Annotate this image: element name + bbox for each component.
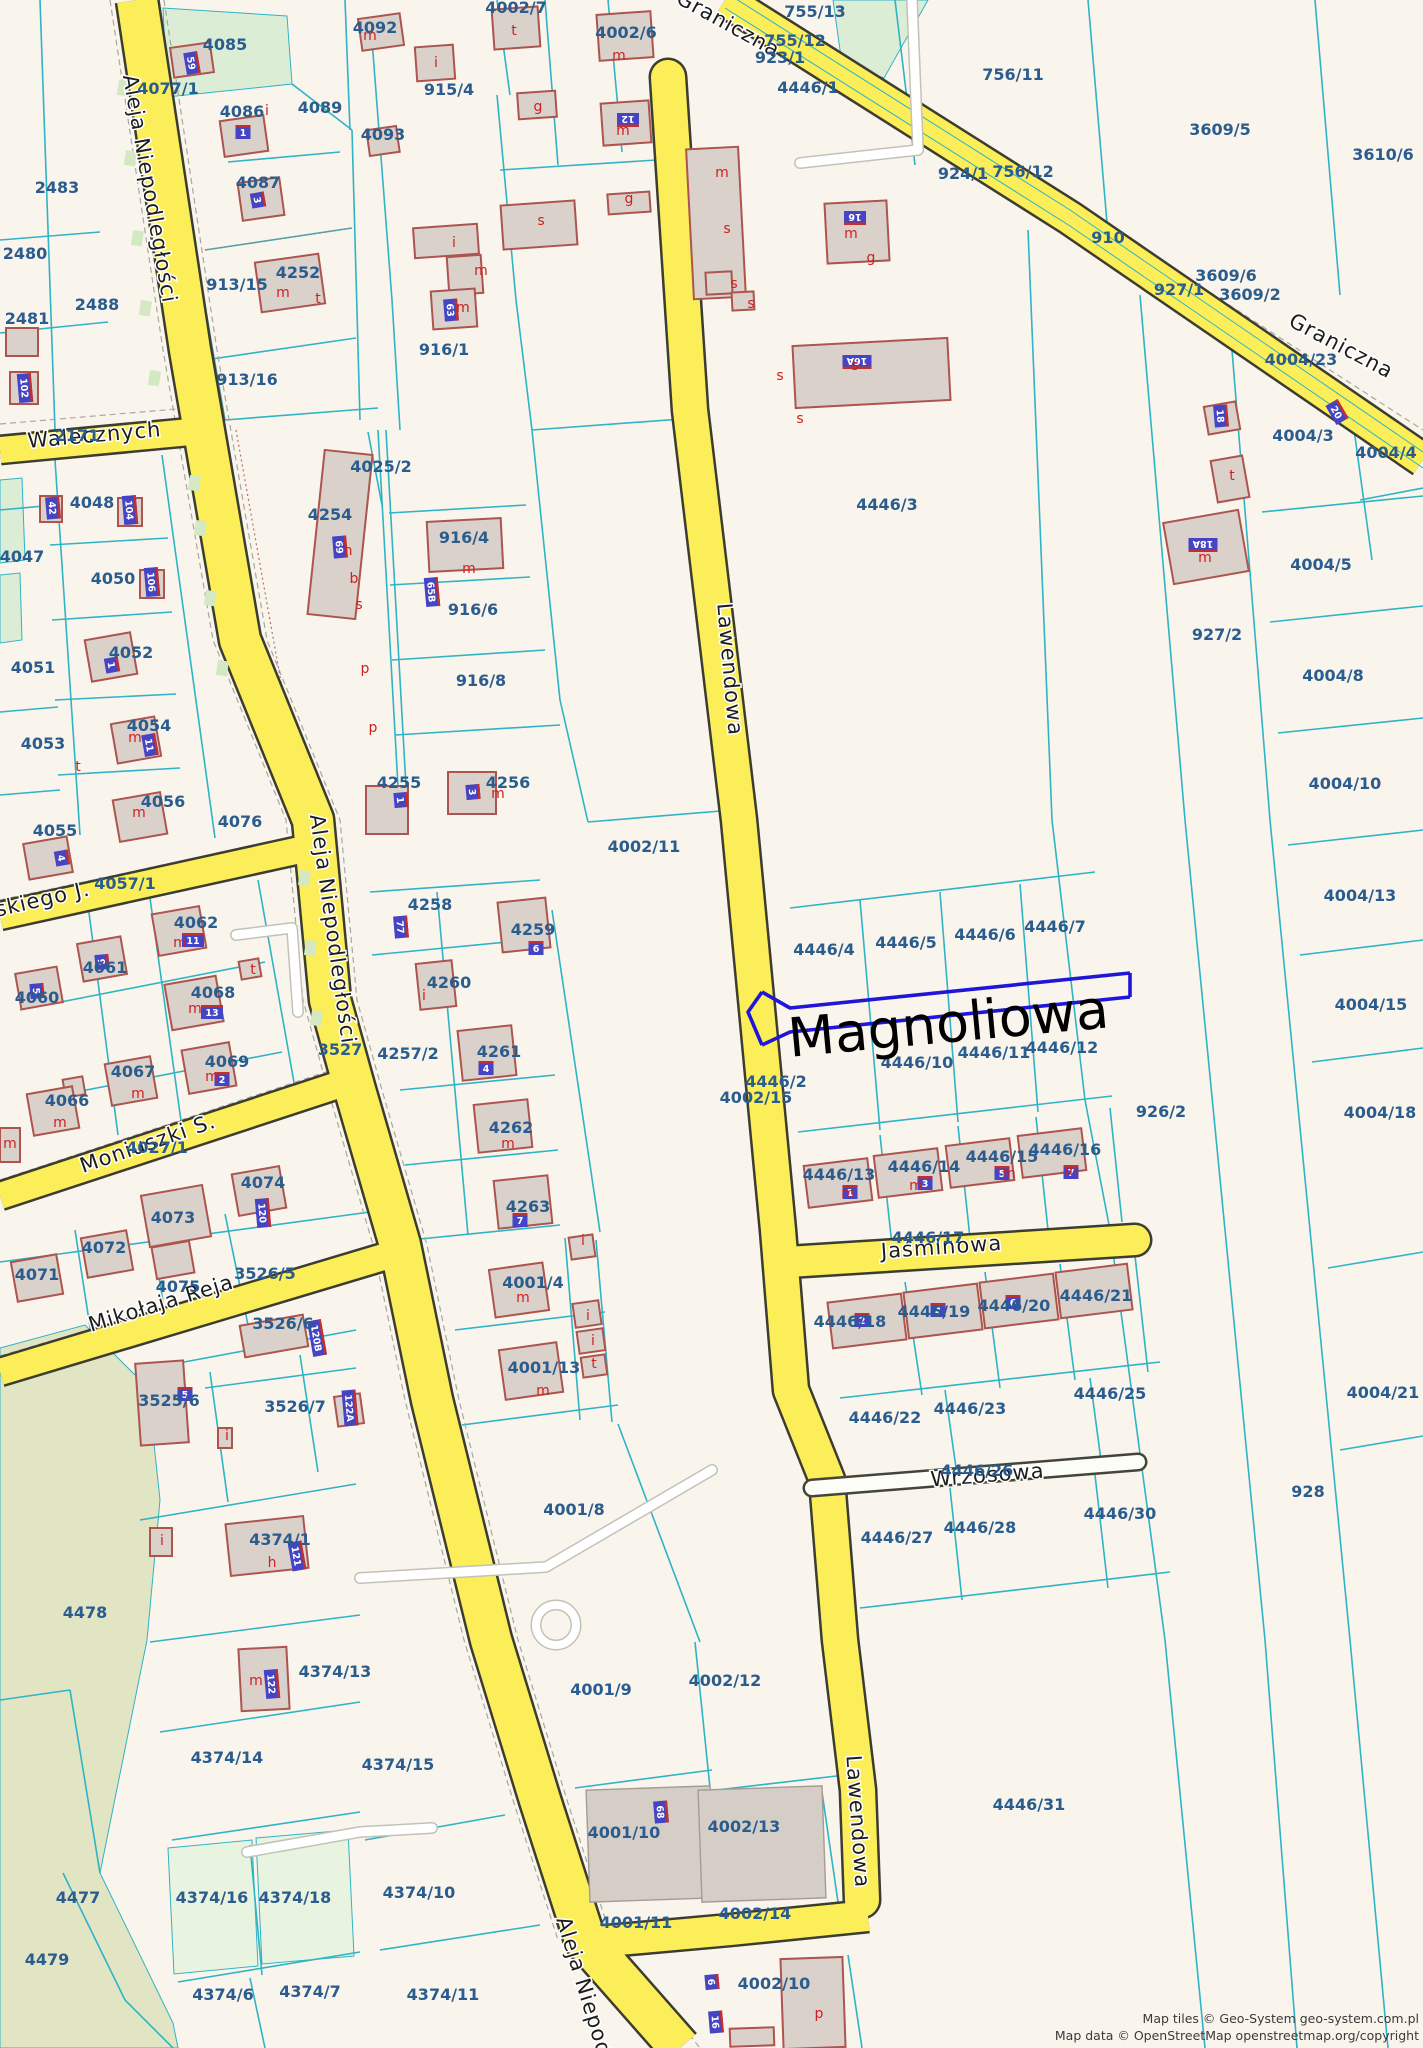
address-plate: 6 [704,1974,719,1990]
address-plate: 77 [393,915,409,938]
address-plate: 4 [479,1061,494,1075]
parcel-number: 4002/15 [720,1088,793,1107]
parcel-number: 4446/20 [978,1296,1051,1315]
parcel-number: 3527 [318,1040,363,1059]
parcel-number: 4446/4 [793,940,855,959]
address-plate: 4 [54,849,70,866]
building-letter: s [730,276,737,292]
building-letter: s [747,296,754,312]
parcel-number: 4075 [156,1277,201,1296]
parcel-number: 4002/7 [485,0,547,17]
parcel-number: 928 [1291,1482,1324,1501]
parcel-number: 2488 [75,295,120,314]
address-plate: 102 [17,373,33,403]
parcel-number: 4001/11 [600,1913,673,1932]
building-letter: m [205,1069,219,1085]
address-plate: 106 [144,567,160,597]
building-letter: m [249,1673,263,1689]
parcel-number: 4087 [236,173,281,192]
parcel-number: 4062 [174,913,219,932]
parcel-number: 916/6 [448,600,498,619]
building-letter: m [844,226,858,242]
address-plate: 3 [250,191,266,208]
svg-text:18: 18 [1213,409,1225,424]
svg-text:77: 77 [393,920,405,934]
parcel-number: 2483 [35,178,80,197]
building-letter: m [1198,550,1212,566]
parcel-number: 4076 [218,812,263,831]
building-letter: s [776,368,783,384]
svg-text:63: 63 [443,303,455,317]
parcel-number: 4252 [276,263,321,282]
parcel-number: 4446/21 [1060,1286,1133,1305]
parcel-number: 4446/31 [993,1795,1066,1814]
building-letter: m [536,1383,550,1399]
building-letter: p [369,720,378,736]
parcel-number: 4055 [33,821,78,840]
parcel-number: 4374/18 [259,1888,332,1907]
building-letter: i [422,988,426,1004]
parcel-number: 916/8 [456,671,506,690]
building-letter: m [3,1136,17,1152]
parcel-number: 4374/16 [176,1888,249,1907]
parcel-number: 4446/5 [875,933,937,952]
svg-text:2: 2 [219,1075,226,1086]
address-plate: 104 [122,495,138,525]
building [152,1241,195,1279]
address-plate: 1 [393,792,408,808]
building-letter: m [276,285,290,301]
building [730,2027,775,2047]
building-letter: m [501,1136,515,1152]
parcel-number: 4477 [56,1888,101,1907]
svg-text:11: 11 [186,936,199,947]
parcel-number: 4446/15 [966,1147,1039,1166]
parcel-number: 4001/10 [588,1823,661,1842]
parcel-number: 3526/7 [264,1397,326,1416]
parcel-number: 4072 [82,1238,127,1257]
parcel-number: 4004/4 [1355,443,1417,462]
parcel-number: 4004/23 [1265,350,1338,369]
parcel-number: 4086 [220,102,265,121]
parcel-number: 756/12 [992,162,1054,181]
parcel-number: 4066 [45,1091,90,1110]
parcel-number: 913/16 [216,370,278,389]
parcel-number: 4374/1 [249,1530,311,1549]
parcel-number: 923/1 [755,48,805,67]
parcel-number: 4262 [489,1118,534,1137]
svg-text:120: 120 [255,1203,268,1224]
parcel-number: 4257/2 [377,1044,439,1063]
parcel-number: 3526/5 [234,1264,296,1283]
parcel-number: 4057/1 [94,874,156,893]
parcel-number: 2481 [5,309,50,328]
parcel-number: 4004/3 [1272,426,1334,445]
parcel-number: 755/13 [784,2,846,21]
parcel-number: 4374/6 [192,1985,254,2004]
building-letter: i [452,235,456,251]
parcel-number: 4256 [486,773,531,792]
building-letter: i [591,1333,595,1349]
parcel-number: 4374/10 [383,1883,456,1902]
building-letter: i [581,1233,585,1249]
address-plate: 18 [1213,404,1229,427]
address-plate: 68 [653,1800,669,1823]
parcel-number: 927/2 [1192,625,1242,644]
parcel-number: 4446/7 [1024,917,1086,936]
parcel-number: 4261 [477,1042,522,1061]
building-letter: m [462,561,476,577]
parcel-number: 4259 [511,920,556,939]
building [780,1957,845,2048]
parcel-number: 924/1 [938,164,988,183]
parcel-number: 4446/14 [888,1157,961,1176]
parcel-number: 4446/6 [954,925,1016,944]
address-plate: 42 [45,496,61,519]
svg-text:122: 122 [264,1674,277,1695]
parcel-number: 4446/22 [849,1408,922,1427]
svg-text:42: 42 [45,501,57,515]
building-letter: p [815,2006,824,2022]
building-letter: s [537,213,544,229]
building-letter: i [586,1308,590,1324]
parcel-number: 2171 [55,426,100,445]
parcel-number: 4001/13 [508,1358,581,1377]
parcel-number: 4446/19 [898,1302,971,1321]
parcel-number: 3609/2 [1219,285,1281,304]
parcel-number: 4446/30 [1084,1504,1157,1523]
parcel-number: 4374/15 [362,1755,435,1774]
attribution: Map tiles © Geo-System geo-system.com.pl… [1055,2011,1419,2045]
parcel-number: 916/1 [419,340,469,359]
parcel-number: 4446/3 [856,495,918,514]
building-letter: m [53,1115,67,1131]
parcel-number: 4004/5 [1290,555,1352,574]
cadastral-map: 591310212631616A42104106465B3169771818A2… [0,0,1423,2048]
parcel-number: 4374/7 [279,1982,341,2001]
parcel-number: 4004/18 [1344,1103,1417,1122]
building-letter: t [1229,468,1235,484]
parcel-number: 4255 [377,773,422,792]
svg-text:68: 68 [653,1805,665,1820]
parcel-number: 4068 [191,983,236,1002]
parcel-number: 3609/6 [1195,266,1257,285]
building-letter: i [225,1428,229,1444]
building-letter: m [841,1186,855,1202]
svg-text:16: 16 [848,211,862,222]
parcel-number: 4258 [408,895,453,914]
building-letter: s [796,411,803,427]
address-plate: 16 [708,2010,724,2033]
building-letter: p [361,661,370,677]
parcel-number: 4446/25 [1074,1384,1147,1403]
parcel-number: 4446/27 [861,1528,934,1547]
svg-text:65B: 65B [424,581,437,602]
svg-text:6: 6 [533,944,540,955]
parcel-number: 916/4 [439,528,489,547]
building-letter: m [616,123,630,139]
parcel-number: 4056 [141,792,186,811]
parcel-number: 4004/13 [1324,886,1397,905]
building-letter: s [355,597,362,613]
svg-text:1: 1 [240,128,247,139]
parcel-number: 4446/18 [814,1312,887,1331]
parcel-number: 915/4 [424,80,474,99]
parcel-number: 4025/2 [350,457,412,476]
building-letter: t [591,1356,597,1372]
parcel-number: 4446/16 [1029,1140,1102,1159]
parcel-number: 2480 [3,244,48,263]
parcel-number: 926/2 [1136,1102,1186,1121]
building [705,271,732,294]
parcel-number: 3610/6 [1352,145,1414,164]
building-letter: g [534,99,543,115]
parcel-number: 4054 [127,716,172,735]
parcel-number: 4254 [308,505,353,524]
svg-text:16: 16 [708,2015,720,2030]
building-letter: m [131,1086,145,1102]
parcel-number: 4073 [151,1208,196,1227]
building-letter: m [474,263,488,279]
parcel-number: 4069 [205,1052,250,1071]
parcel-number: 4092 [353,18,398,37]
parcel-number: 4446/1 [777,78,839,97]
building [413,224,479,258]
svg-text:104: 104 [122,500,135,521]
svg-text:3: 3 [466,788,478,796]
parcel-number: 4067 [111,1062,156,1081]
parcel-number: 4001/9 [570,1680,632,1699]
parcel-number: 4446/17 [892,1228,965,1247]
parcel-number: 4002/6 [595,23,657,42]
parcel-number: 4050 [91,569,136,588]
building [238,1647,289,1711]
address-plate: 6 [529,941,544,955]
building-letter: g [625,191,634,207]
building-letter: h [268,1555,277,1571]
parcel-number: 4089 [298,98,343,117]
address-plate: 1 [236,125,251,139]
svg-text:102: 102 [17,378,30,399]
svg-text:106: 106 [144,572,157,593]
building-letter: m [1064,1163,1078,1179]
address-plate: 65B [424,577,440,607]
building-letter: m [516,1290,530,1306]
map-canvas[interactable]: 591310212631616A42104106465B3169771818A2… [0,0,1423,2048]
building-letter: m [188,1001,202,1017]
parcel-number: 4002/11 [608,837,681,856]
svg-text:59: 59 [184,56,197,71]
parcel-number: 4053 [21,734,66,753]
parcel-number: 4093 [361,125,406,144]
parcel-number: 3526/6 [252,1314,314,1333]
svg-text:6: 6 [705,1978,717,1986]
address-plate: 122 [264,1669,280,1699]
parcel-number: 4004/10 [1309,774,1382,793]
building-letter: i [160,1533,164,1549]
parcel-number: 756/11 [982,65,1044,84]
building [698,1786,826,1902]
address-plate: 16 [844,211,866,225]
parcel-number: 4004/21 [1347,1383,1420,1402]
address-plate: 13 [201,1005,223,1019]
building-letter: i [265,103,269,119]
svg-text:11: 11 [142,738,155,753]
building-letter: m [173,935,187,951]
parcel-number: 4004/8 [1302,666,1364,685]
building-letter: h [344,543,353,559]
building-letter: m [1002,1166,1016,1182]
building-letter: t [511,23,517,39]
svg-text:13: 13 [205,1008,218,1019]
building-letter: t [315,291,321,307]
parcel-number: 4085 [203,35,248,54]
attribution-tiles: Map tiles © Geo-System geo-system.com.pl [1055,2011,1419,2028]
parcel-number: 4001/4 [502,1273,564,1292]
building-letter: t [75,759,81,775]
roads-layer [0,0,1423,2048]
parcel-number: 4047 [0,547,44,566]
parcel-number: 4446/26 [941,1461,1014,1480]
svg-text:4: 4 [483,1064,490,1075]
parcel-number: 4060 [15,988,60,1007]
svg-text:7: 7 [517,1216,524,1227]
parcel-number: 4260 [427,973,472,992]
parcel-number: 4374/11 [407,1985,480,2004]
parcel-number: 4263 [506,1197,551,1216]
building-letter: i [434,55,438,71]
building-letter: t [250,962,256,978]
parcel-number: 4048 [70,493,115,512]
building-letter: g [867,250,876,266]
address-plate: 3 [465,784,480,800]
building-letter: m [715,165,729,181]
parcel-number: 4002/13 [708,1817,781,1836]
building-letter: s [723,221,730,237]
parcel-number: 910 [1091,228,1124,247]
parcel-number: 3525/6 [138,1391,200,1410]
building-letter: m [612,48,626,64]
parcel-number: 4446/28 [944,1518,1017,1537]
parcel-number: 4002/10 [738,1974,811,1993]
parcel-number: 913/15 [206,275,268,294]
building-letter: m [909,1178,923,1194]
parcel-number: 4027/1 [126,1138,188,1157]
address-plate: 120 [255,1198,271,1228]
building [586,1786,714,1902]
parcel-number: 4002/12 [689,1671,762,1690]
parcel-number: 3609/5 [1189,120,1251,139]
parcel-number: 4004/15 [1335,995,1408,1014]
svg-text:1: 1 [394,796,406,804]
parcel-number: 4374/14 [191,1748,264,1767]
building [6,328,38,356]
attribution-data: Map data © OpenStreetMap openstreetmap.o… [1055,2028,1419,2045]
building-letter: m [456,300,470,316]
parcel-number: 4051 [11,658,56,677]
parcel-number: 4077/1 [137,79,199,98]
parcel-number: 4374/13 [299,1662,372,1681]
building-letter: b [350,571,359,587]
parcel-number: 4478 [63,1603,108,1622]
parcel-number: 4002/14 [719,1904,792,1923]
parcel-number: 4446/23 [934,1399,1007,1418]
parcel-number: 4001/8 [543,1500,605,1519]
parcel-number: 4479 [25,1950,70,1969]
parcel-number: 4074 [241,1173,286,1192]
parcel-number: 4071 [15,1265,60,1284]
parcel-number: 4061 [83,958,128,977]
parcel-number: 4446/13 [803,1165,876,1184]
building-letter: s [851,358,858,374]
parcel-number: 4052 [109,643,154,662]
building [792,338,950,408]
svg-text:18A: 18A [1192,538,1213,549]
